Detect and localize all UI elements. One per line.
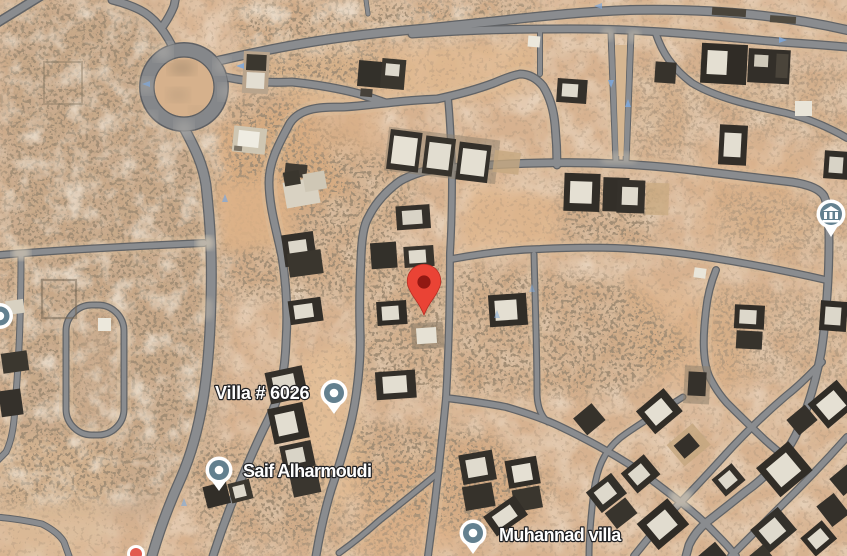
svg-text:Villa # 6026: Villa # 6026 bbox=[215, 383, 310, 403]
svg-text:Muhannad villa: Muhannad villa bbox=[499, 525, 622, 545]
svg-text:Saif Alharmoudi: Saif Alharmoudi bbox=[243, 461, 371, 481]
